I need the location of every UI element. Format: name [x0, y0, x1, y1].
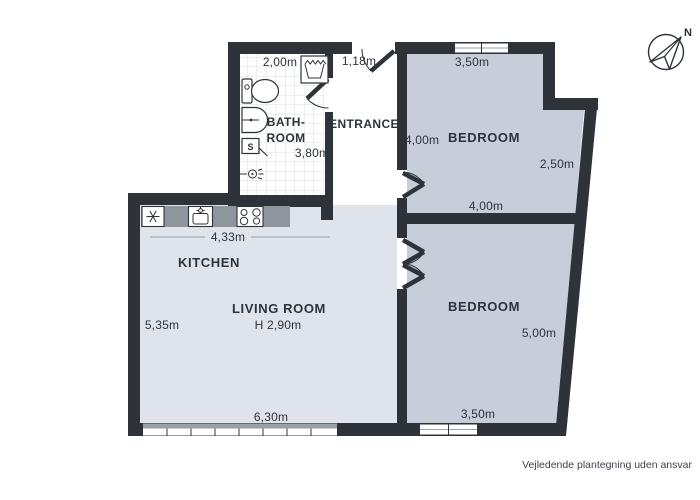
wall-bedroom-divider — [397, 213, 578, 224]
wall-divider-upper — [397, 42, 407, 170]
floor-plan: 2,00m 1,18m 3,50m BATH- ROOM 3,80m ENTRA… — [0, 0, 700, 500]
kitchen-counter — [141, 206, 290, 227]
floor-plan-page: 2,00m 1,18m 3,50m BATH- ROOM 3,80m ENTRA… — [0, 0, 700, 500]
bedroom1-label: BEDROOM — [448, 130, 520, 145]
shower-label: S — [247, 142, 253, 152]
fridge-icon — [142, 207, 164, 227]
bedroom2-right-dim: 5,00m — [522, 326, 556, 340]
bedroom1-right-dim: 2,50m — [540, 157, 574, 171]
washing-machine-icon — [301, 56, 328, 83]
compass-north-label: N — [684, 27, 692, 39]
bedroom2-bottom-dim: 3,50m — [461, 407, 495, 421]
living-room-left-dim: 5,35m — [145, 318, 179, 332]
wall-bathroom-bottom — [228, 195, 333, 207]
entrance-label: ENTRANCE — [329, 117, 399, 131]
bedroom1-window — [455, 44, 508, 53]
kitchen-sink-icon — [189, 207, 213, 227]
living-room-label: LIVING ROOM — [232, 301, 326, 316]
wall-top-bath-entrance — [228, 42, 352, 54]
wall-divider-lower — [397, 289, 407, 429]
wall-right-upper — [543, 42, 555, 104]
bathroom-length-dim: 3,80m — [295, 146, 329, 160]
kitchen-counter-dim: 4,33m — [211, 230, 245, 244]
footer-disclaimer: Vejledende plantegning uden ansvar — [522, 459, 692, 471]
kitchen-label: KITCHEN — [178, 255, 240, 270]
wall-left — [128, 193, 140, 436]
bathroom-label-line1: BATH- — [267, 115, 305, 129]
living-room-bottom-dim: 6,30m — [254, 410, 288, 424]
washbasin-icon — [242, 107, 268, 132]
bathroom-label-line2: ROOM — [267, 131, 306, 145]
toilet-icon — [242, 79, 279, 103]
entrance-door-dim: 1,18m — [342, 54, 376, 68]
living-room-window — [143, 424, 337, 436]
bedroom2-floor — [407, 224, 575, 423]
bedroom2-label: BEDROOM — [448, 299, 520, 314]
bedroom1-bottom-dim: 4,00m — [469, 199, 503, 213]
bedroom1-left-dim: 4,00m — [405, 133, 439, 147]
wall-bathroom-left — [228, 42, 240, 205]
bedroom1-top-dim: 3,50m — [455, 55, 489, 69]
wall-kitchen-top — [128, 193, 240, 205]
bathroom-width-dim: 2,00m — [263, 55, 297, 69]
compass-icon: N — [649, 27, 693, 70]
stove-icon — [237, 207, 263, 227]
bedroom2-window — [420, 425, 477, 435]
living-room-height-dim: H 2,90m — [255, 318, 302, 332]
room-floors — [140, 54, 584, 423]
